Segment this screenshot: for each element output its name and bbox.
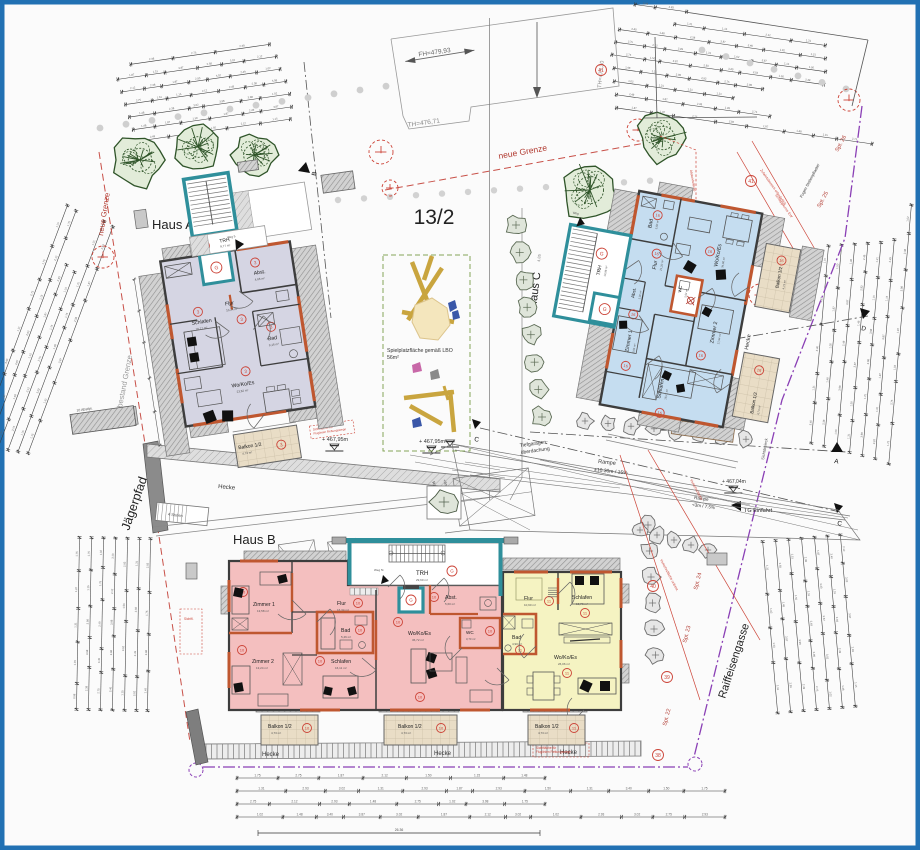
svg-text:1.87: 1.87	[74, 586, 78, 592]
svg-text:1.87: 1.87	[338, 774, 344, 778]
svg-text:16,34 m²: 16,34 m²	[337, 608, 349, 612]
svg-text:2.49: 2.49	[862, 254, 866, 260]
svg-text:1.50: 1.50	[834, 429, 838, 435]
svg-text:1.02: 1.02	[257, 813, 263, 817]
svg-text:2.93: 2.93	[598, 813, 604, 817]
svg-text:2.93: 2.93	[331, 800, 337, 804]
svg-text:4,73 m²: 4,73 m²	[401, 731, 411, 735]
svg-text:Balkon 1/2: Balkon 1/2	[268, 724, 292, 730]
svg-text:3.98: 3.98	[482, 800, 488, 804]
svg-text:3.98: 3.98	[85, 649, 89, 655]
svg-text:1.02: 1.02	[769, 608, 773, 614]
svg-text:1.15: 1.15	[884, 295, 888, 301]
svg-text:2.93: 2.93	[835, 617, 839, 623]
svg-text:1.48: 1.48	[841, 685, 845, 691]
svg-text:1.48: 1.48	[521, 774, 527, 778]
svg-text:10: 10	[305, 725, 310, 730]
svg-text:56m²: 56m²	[387, 355, 399, 361]
svg-text:1.31: 1.31	[875, 406, 879, 412]
svg-text:3.87: 3.87	[359, 813, 365, 817]
svg-text:41: 41	[748, 179, 754, 185]
svg-text:1.75: 1.75	[145, 610, 149, 616]
svg-text:1.02: 1.02	[449, 800, 455, 804]
svg-text:2.93: 2.93	[421, 787, 427, 791]
svg-text:5,46 m²: 5,46 m²	[341, 635, 351, 639]
svg-text:10: 10	[396, 619, 401, 624]
svg-text:26,06 m²: 26,06 m²	[558, 662, 570, 666]
svg-text:1.02: 1.02	[99, 549, 103, 555]
svg-text:1.02: 1.02	[892, 364, 896, 370]
svg-text:1.02: 1.02	[553, 813, 559, 817]
svg-text:+ 467,04m: + 467,04m	[722, 479, 746, 485]
svg-text:38: 38	[655, 753, 661, 759]
svg-text:Zimmer 2: Zimmer 2	[252, 659, 274, 665]
svg-text:2.38: 2.38	[84, 685, 88, 691]
svg-text:3.98: 3.98	[72, 693, 76, 699]
svg-text:1.15: 1.15	[73, 660, 77, 666]
svg-text:2.38: 2.38	[804, 557, 808, 563]
svg-text:1.75: 1.75	[522, 800, 528, 804]
svg-text:3.87: 3.87	[853, 362, 857, 368]
svg-text:2.12: 2.12	[291, 800, 297, 804]
svg-text:3.40: 3.40	[819, 583, 823, 589]
svg-text:Zimmer 1: Zimmer 1	[253, 602, 275, 608]
svg-text:1.87: 1.87	[896, 327, 900, 333]
svg-text:10: 10	[356, 600, 361, 605]
svg-text:3.02: 3.02	[634, 813, 640, 817]
svg-text:2.93: 2.93	[789, 682, 793, 688]
svg-text:26.36: 26.36	[395, 828, 404, 832]
svg-text:3.40: 3.40	[626, 787, 632, 791]
svg-text:3.98: 3.98	[866, 358, 870, 364]
svg-text:2.93: 2.93	[122, 561, 126, 567]
svg-text:10,90 m²: 10,90 m²	[524, 603, 536, 607]
svg-text:1.15: 1.15	[86, 585, 90, 591]
svg-text:3.98: 3.98	[85, 619, 89, 625]
svg-text:3.40: 3.40	[327, 813, 333, 817]
svg-text:3.98: 3.98	[837, 385, 841, 391]
svg-text:3.87: 3.87	[845, 299, 849, 305]
svg-text:Wo/Ko/Es: Wo/Ko/Es	[554, 655, 577, 661]
svg-text:1.31: 1.31	[846, 433, 850, 439]
svg-text:Hecke: Hecke	[262, 752, 280, 758]
svg-text:Schlafen: Schlafen	[331, 659, 351, 665]
svg-text:3.98: 3.98	[859, 432, 863, 438]
svg-text:3.02: 3.02	[396, 813, 402, 817]
svg-text:TRH: TRH	[416, 571, 428, 577]
svg-text:13,58 m²: 13,58 m²	[257, 609, 269, 613]
svg-text:2.75: 2.75	[96, 688, 100, 694]
svg-text:Bad: Bad	[341, 628, 350, 634]
svg-text:3.40: 3.40	[97, 657, 101, 663]
svg-text:2.12: 2.12	[382, 774, 388, 778]
svg-text:2.75: 2.75	[666, 813, 672, 817]
svg-text:3.40: 3.40	[815, 345, 819, 351]
svg-text:Sichtfl.: Sichtfl.	[184, 617, 194, 621]
svg-text:1.50: 1.50	[835, 263, 839, 269]
svg-text:+ 467,95m: + 467,95m	[419, 439, 446, 445]
svg-text:10: 10	[439, 725, 444, 730]
svg-text:3.87: 3.87	[848, 613, 852, 619]
svg-text:1.48: 1.48	[781, 602, 785, 608]
svg-text:3.87: 3.87	[881, 334, 885, 340]
svg-text:1.87: 1.87	[831, 306, 835, 312]
svg-text:2.49: 2.49	[888, 257, 892, 263]
svg-text:1.02: 1.02	[905, 216, 909, 222]
svg-text:1.48: 1.48	[849, 258, 853, 264]
svg-text:1.50: 1.50	[794, 595, 798, 601]
svg-text:13/2: 13/2	[414, 206, 455, 229]
svg-text:36,72 m²: 36,72 m²	[412, 638, 424, 642]
svg-text:1.75: 1.75	[886, 440, 890, 446]
svg-text:Wo/Ko/Es: Wo/Ko/Es	[408, 631, 431, 637]
svg-text:1.31: 1.31	[807, 591, 811, 597]
svg-text:1.50: 1.50	[425, 774, 431, 778]
svg-text:2.93: 2.93	[859, 285, 863, 291]
svg-text:1.15: 1.15	[474, 774, 480, 778]
svg-text:1.75: 1.75	[254, 774, 260, 778]
svg-text:1.15: 1.15	[822, 257, 826, 263]
svg-text:10: 10	[432, 594, 437, 599]
svg-text:1.02: 1.02	[828, 343, 832, 349]
svg-text:40: 40	[650, 584, 656, 590]
svg-text:1.50: 1.50	[663, 787, 669, 791]
svg-text:1.75: 1.75	[701, 787, 707, 791]
svg-text:1.87: 1.87	[456, 787, 462, 791]
svg-text:3.02: 3.02	[515, 813, 521, 817]
svg-text:2.49: 2.49	[97, 621, 101, 627]
svg-text:2.75: 2.75	[889, 399, 893, 405]
svg-text:Haus A: Haus A	[152, 217, 194, 232]
svg-text:2.75: 2.75	[295, 774, 301, 778]
svg-text:2.93: 2.93	[778, 562, 782, 568]
svg-text:10: 10	[318, 658, 323, 663]
svg-text:5,60 m²: 5,60 m²	[445, 602, 455, 606]
svg-text:3.98: 3.98	[109, 619, 113, 625]
svg-text:Haus B: Haus B	[233, 532, 276, 547]
svg-text:1.31: 1.31	[258, 787, 264, 791]
svg-text:G: G	[409, 598, 413, 603]
svg-text:1.50: 1.50	[849, 401, 853, 407]
svg-text:3.40: 3.40	[111, 553, 115, 559]
svg-text:3.98: 3.98	[812, 651, 816, 657]
svg-text:2.93: 2.93	[496, 787, 502, 791]
svg-text:10: 10	[358, 627, 363, 632]
svg-text:1.75: 1.75	[863, 393, 867, 399]
svg-text:4,73 m²: 4,73 m²	[271, 731, 281, 735]
svg-text:2.75: 2.75	[415, 800, 421, 804]
svg-text:1.31: 1.31	[811, 385, 815, 391]
svg-text:2.49: 2.49	[851, 647, 855, 653]
svg-text:2.93: 2.93	[134, 607, 138, 613]
svg-text:3.02: 3.02	[132, 690, 136, 696]
svg-text:3.98: 3.98	[109, 649, 113, 655]
svg-text:41: 41	[598, 68, 604, 74]
svg-text:2.12: 2.12	[110, 588, 114, 594]
svg-text:WC: WC	[466, 630, 474, 635]
svg-text:1.87: 1.87	[441, 813, 447, 817]
svg-text:3.02: 3.02	[339, 787, 345, 791]
svg-text:1.31: 1.31	[776, 685, 780, 691]
svg-text:Balkon 1/2: Balkon 1/2	[398, 724, 422, 730]
svg-text:1.31: 1.31	[378, 787, 384, 791]
svg-text:10: 10	[240, 647, 245, 652]
svg-text:Balkon 1/2: Balkon 1/2	[535, 724, 559, 730]
svg-text:1.50: 1.50	[122, 603, 126, 609]
svg-text:3.98: 3.98	[798, 639, 802, 645]
svg-text:1.48: 1.48	[370, 800, 376, 804]
svg-text:1.48: 1.48	[297, 813, 303, 817]
svg-text:1.31: 1.31	[765, 565, 769, 571]
svg-text:3.98: 3.98	[899, 285, 903, 291]
svg-text:2.12: 2.12	[485, 813, 491, 817]
svg-text:2.93: 2.93	[145, 562, 149, 568]
svg-text:2.49: 2.49	[809, 620, 813, 626]
svg-text:1.48: 1.48	[825, 377, 829, 383]
svg-text:4.85: 4.85	[536, 253, 542, 262]
svg-text:1.31: 1.31	[73, 622, 77, 628]
svg-text:Weg 5t: Weg 5t	[374, 568, 384, 572]
svg-text:13,24 m²: 13,24 m²	[256, 666, 268, 670]
svg-text:3.02: 3.02	[121, 645, 125, 651]
svg-text:2.49: 2.49	[841, 340, 845, 346]
svg-text:3.98: 3.98	[144, 649, 148, 655]
svg-text:2.49: 2.49	[133, 651, 137, 657]
svg-text:2.75: 2.75	[815, 686, 819, 692]
svg-text:Hecke: Hecke	[434, 751, 452, 757]
svg-text:16,11 m²: 16,11 m²	[335, 666, 347, 670]
svg-text:3.40: 3.40	[108, 686, 112, 692]
svg-text:3,70 m²: 3,70 m²	[466, 637, 476, 641]
svg-text:29,60 m²: 29,60 m²	[416, 578, 428, 582]
svg-text:Spielplatzfläche gemäß LBO: Spielplatzfläche gemäß LBO	[387, 348, 453, 354]
svg-text:1.31: 1.31	[587, 787, 593, 791]
svg-text:1.15: 1.15	[120, 690, 124, 696]
svg-text:3.87: 3.87	[822, 615, 826, 621]
svg-text:10: 10	[488, 628, 493, 633]
svg-text:3.40: 3.40	[829, 553, 833, 559]
svg-text:3.87: 3.87	[784, 636, 788, 642]
svg-text:1.48: 1.48	[143, 688, 147, 694]
svg-text:3.02: 3.02	[845, 577, 849, 583]
svg-text:Flur: Flur	[337, 601, 346, 607]
svg-text:1.31: 1.31	[135, 560, 139, 566]
svg-text:2.93: 2.93	[302, 787, 308, 791]
svg-text:39: 39	[664, 675, 670, 681]
svg-text:1.48: 1.48	[856, 320, 860, 326]
svg-text:Fluglinien Rettungswege: Fluglinien Rettungswege	[536, 750, 571, 754]
svg-text:1.75: 1.75	[98, 580, 102, 586]
svg-text:1.75: 1.75	[75, 551, 79, 557]
svg-text:2.75: 2.75	[250, 800, 256, 804]
svg-text:3.02: 3.02	[825, 654, 829, 660]
svg-text:10: 10	[418, 694, 423, 699]
svg-text:1.15: 1.15	[790, 554, 794, 560]
svg-text:3.98: 3.98	[869, 328, 873, 334]
svg-text:1.15: 1.15	[871, 295, 875, 301]
svg-text:2.93: 2.93	[702, 813, 708, 817]
svg-text:1.87: 1.87	[878, 373, 882, 379]
svg-text:1.15: 1.15	[854, 682, 858, 688]
svg-text:1.02: 1.02	[828, 691, 832, 697]
svg-text:Flur: Flur	[524, 596, 533, 602]
svg-text:2.38: 2.38	[903, 248, 907, 254]
svg-text:+ 467,95m: + 467,95m	[322, 437, 349, 443]
svg-text:1.75: 1.75	[87, 551, 91, 557]
svg-text:2.49: 2.49	[838, 648, 842, 654]
svg-text:2.49: 2.49	[802, 684, 806, 690]
svg-text:1.31: 1.31	[833, 589, 837, 595]
svg-text:2.38: 2.38	[821, 419, 825, 425]
svg-text:4,73 m²: 4,73 m²	[538, 731, 548, 735]
svg-text:G: G	[450, 569, 454, 574]
svg-text:3.87: 3.87	[872, 438, 876, 444]
svg-text:1.87: 1.87	[816, 550, 820, 556]
svg-text:3.40: 3.40	[808, 419, 812, 425]
svg-text:2.12: 2.12	[842, 546, 846, 552]
svg-text:1.50: 1.50	[545, 787, 551, 791]
svg-text:1.31: 1.31	[875, 257, 879, 263]
svg-text:1.50: 1.50	[772, 642, 776, 648]
